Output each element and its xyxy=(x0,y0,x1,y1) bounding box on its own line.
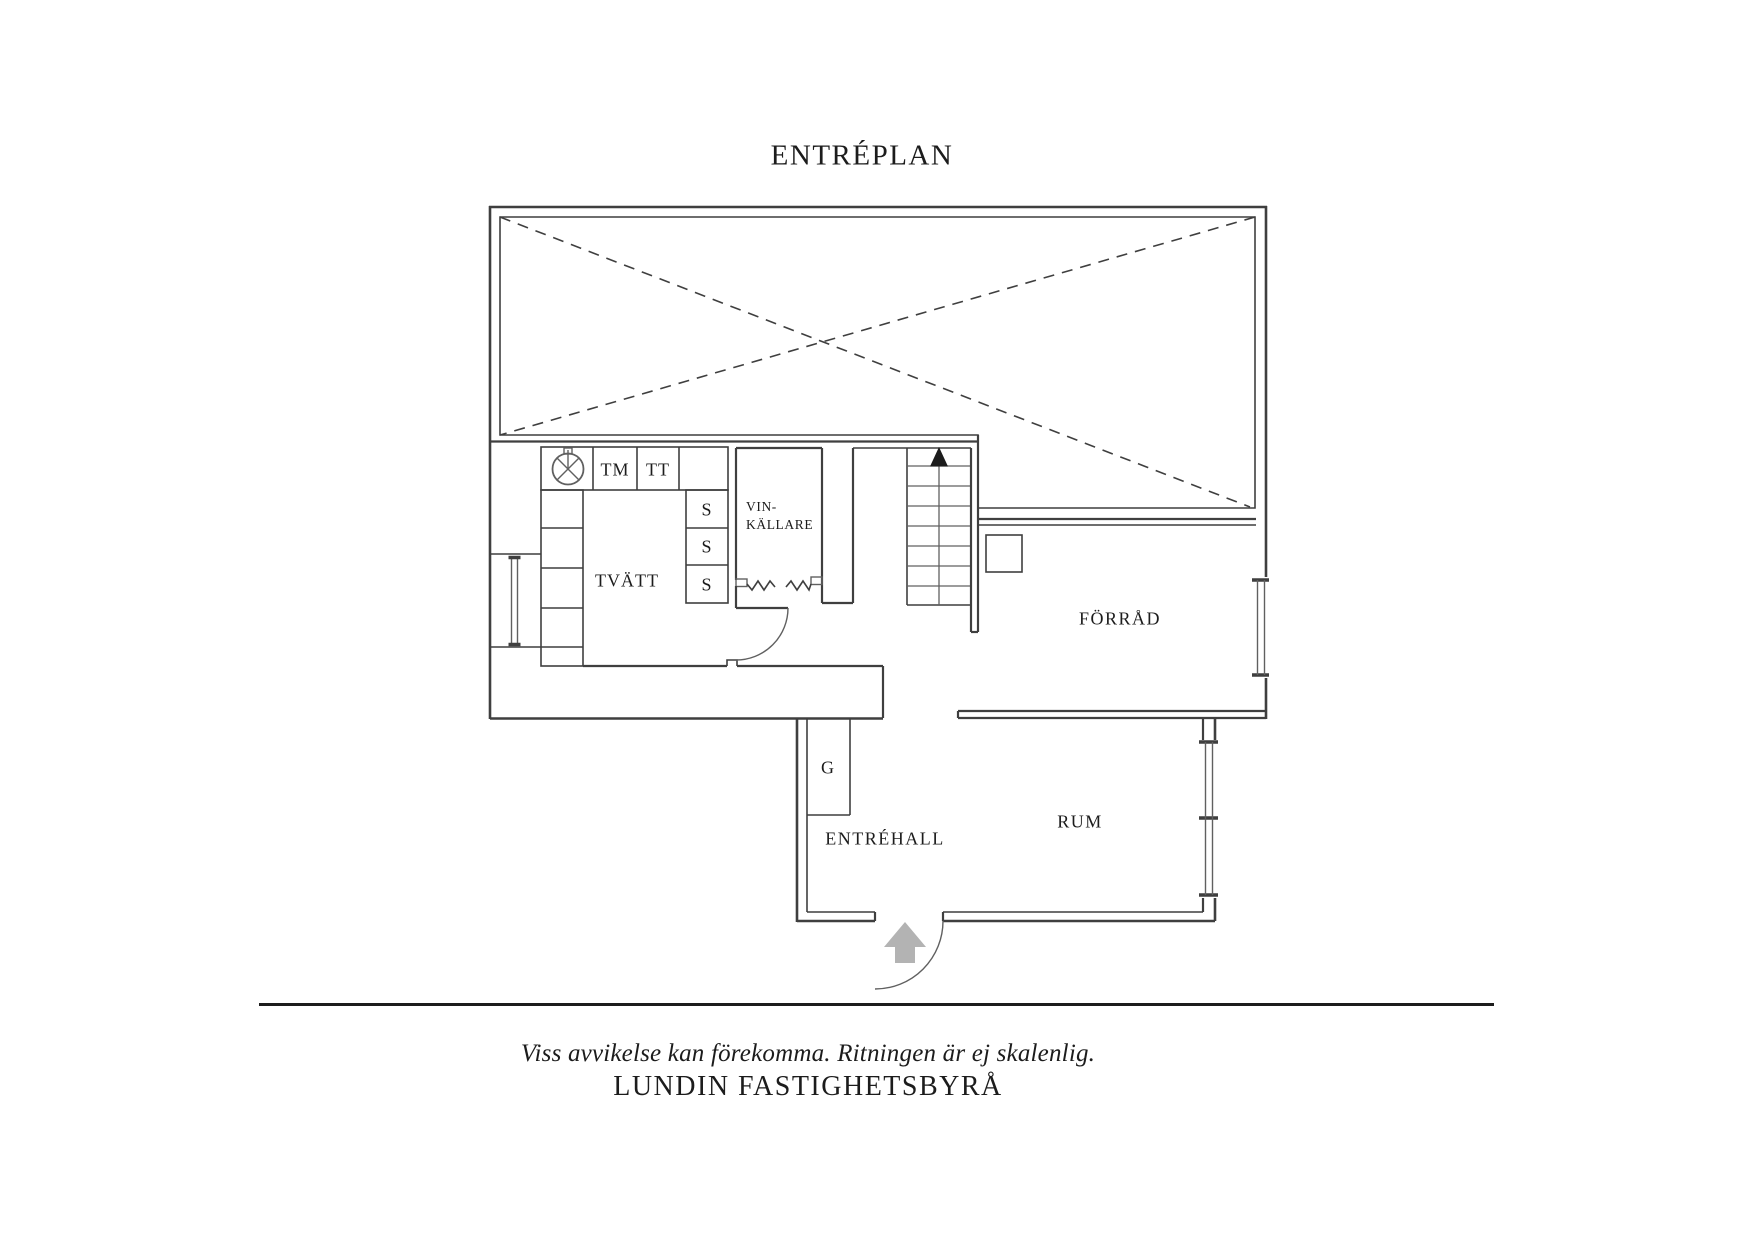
fixture-label-g: G xyxy=(821,758,835,779)
fixture-label-s2: S xyxy=(701,537,712,558)
footer-brand: LUNDIN FASTIGHETSBYRÅ xyxy=(613,1071,1003,1103)
fixture-label-s3: S xyxy=(701,575,712,596)
footer-disclaimer: Viss avvikelse kan förekomma. Ritningen … xyxy=(521,1040,1095,1068)
vinkallare-line2: KÄLLARE xyxy=(746,516,813,534)
stairs-up-arrow-icon xyxy=(930,447,948,467)
fixture-label-tt: TT xyxy=(646,460,670,481)
entrehall-walls xyxy=(797,718,1215,922)
shaft-walls xyxy=(822,448,853,603)
left-cabinet-column xyxy=(541,490,583,666)
tvatt-window xyxy=(490,554,541,647)
fixture-label-tm: TM xyxy=(601,460,630,481)
floor-drain-icon xyxy=(553,448,584,485)
rum-windows xyxy=(1199,740,1218,898)
entrance-arrow-icon xyxy=(884,922,926,963)
room-label-vinkallare: VIN- KÄLLARE xyxy=(746,498,813,534)
entrance xyxy=(875,921,943,989)
lower-left-exterior-wall xyxy=(490,660,883,719)
pillar-square xyxy=(986,535,1022,572)
rum-walls xyxy=(1199,718,1218,921)
vinkallare-walls xyxy=(736,448,822,660)
laundry-appliance-row xyxy=(541,447,728,490)
room-label-tvatt: TVÄTT xyxy=(595,571,659,592)
forrad-window xyxy=(1252,577,1269,678)
page-title: ENTRÉPLAN xyxy=(771,140,954,173)
zigzag-opening-icon xyxy=(747,581,811,590)
room-label-rum: RUM xyxy=(1057,812,1103,833)
fixture-label-s1: S xyxy=(701,500,712,521)
room-label-forrad: FÖRRÅD xyxy=(1079,609,1161,630)
floor-plan-page: ENTRÉPLAN TM TT S S S TVÄTT VIN- KÄLLARE… xyxy=(0,0,1754,1240)
room-label-entrehall: ENTRÉHALL xyxy=(825,829,944,850)
staircase xyxy=(853,435,978,632)
vinkallare-line1: VIN- xyxy=(746,498,813,516)
tvatt-door-arc xyxy=(736,608,788,660)
